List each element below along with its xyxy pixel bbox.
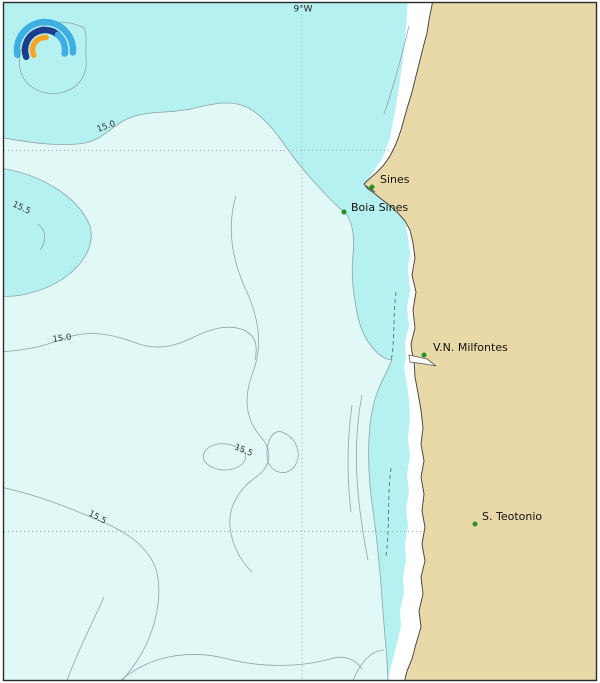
place-label-vn-milfontes: V.N. Milfontes: [433, 341, 508, 354]
coastal-sst-map: Sines Boia Sines V.N. Milfontes S. Teoto…: [0, 0, 600, 683]
place-marker-boia-sines: [342, 210, 346, 214]
place-marker-sines: [370, 185, 374, 189]
place-label-sines: Sines: [380, 173, 410, 186]
place-marker-s-teotonio: [473, 522, 477, 526]
meridian-label-9w: 9°W: [293, 5, 312, 15]
place-label-boia-sines: Boia Sines: [351, 201, 408, 214]
place-label-s-teotonio: S. Teotonio: [482, 510, 542, 523]
sst-map-page: Sines Boia Sines V.N. Milfontes S. Teoto…: [0, 0, 600, 683]
place-marker-vn-milfontes: [422, 353, 426, 357]
